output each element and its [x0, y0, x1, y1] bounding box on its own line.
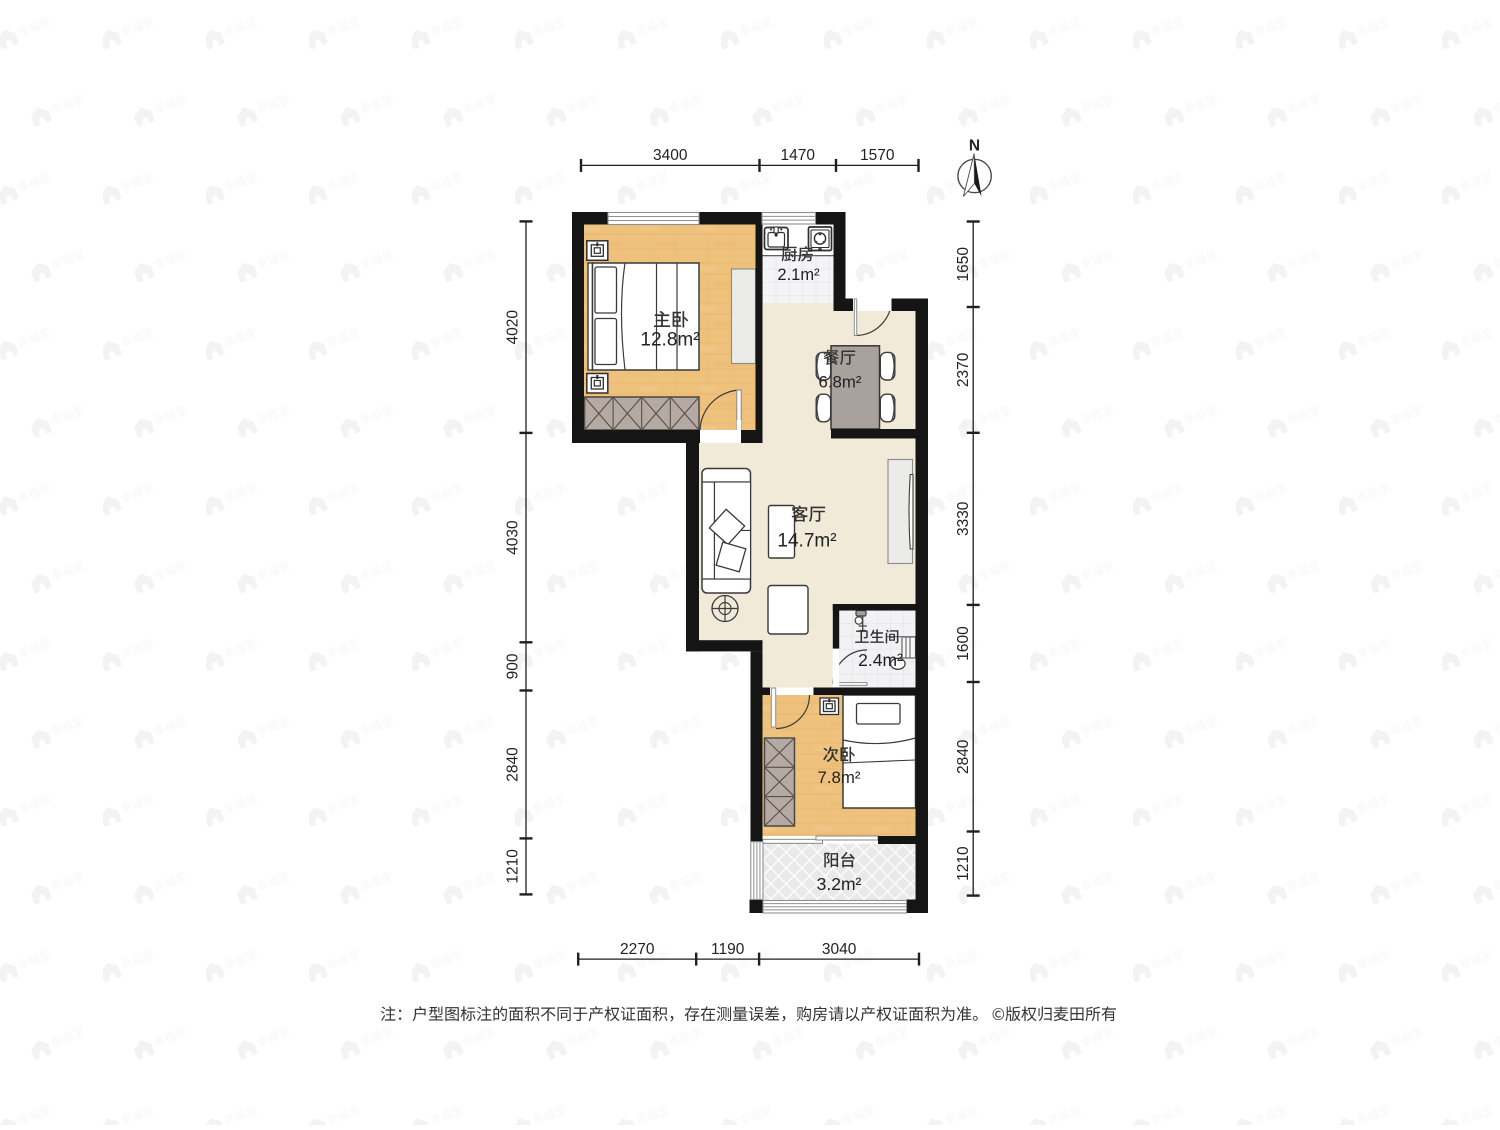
svg-text:12.8m²: 12.8m² — [640, 330, 699, 351]
svg-text:1650: 1650 — [955, 247, 972, 282]
svg-text:1570: 1570 — [860, 147, 895, 164]
svg-text:4030: 4030 — [505, 520, 522, 555]
svg-text:7.8m²: 7.8m² — [818, 768, 861, 787]
svg-text:14.7m²: 14.7m² — [777, 531, 836, 552]
svg-text:3330: 3330 — [955, 501, 972, 536]
svg-text:2370: 2370 — [955, 352, 972, 387]
svg-text:3400: 3400 — [653, 147, 688, 164]
svg-text:2.1m²: 2.1m² — [777, 266, 820, 284]
svg-text:1600: 1600 — [955, 626, 972, 661]
svg-text:1210: 1210 — [505, 849, 522, 884]
svg-text:2.4m²: 2.4m² — [858, 650, 903, 670]
svg-text:2840: 2840 — [955, 739, 972, 774]
svg-text:1470: 1470 — [781, 147, 816, 164]
svg-text:1210: 1210 — [955, 846, 972, 881]
svg-text:6.8m²: 6.8m² — [819, 372, 862, 391]
svg-text:1190: 1190 — [711, 941, 745, 958]
svg-text:900: 900 — [505, 653, 522, 679]
svg-text:3040: 3040 — [822, 941, 857, 958]
svg-text:4020: 4020 — [505, 310, 522, 345]
svg-text:2840: 2840 — [505, 747, 522, 782]
svg-text:2270: 2270 — [620, 941, 655, 958]
svg-text:N: N — [969, 138, 980, 155]
svg-text:3.2m²: 3.2m² — [817, 874, 862, 894]
